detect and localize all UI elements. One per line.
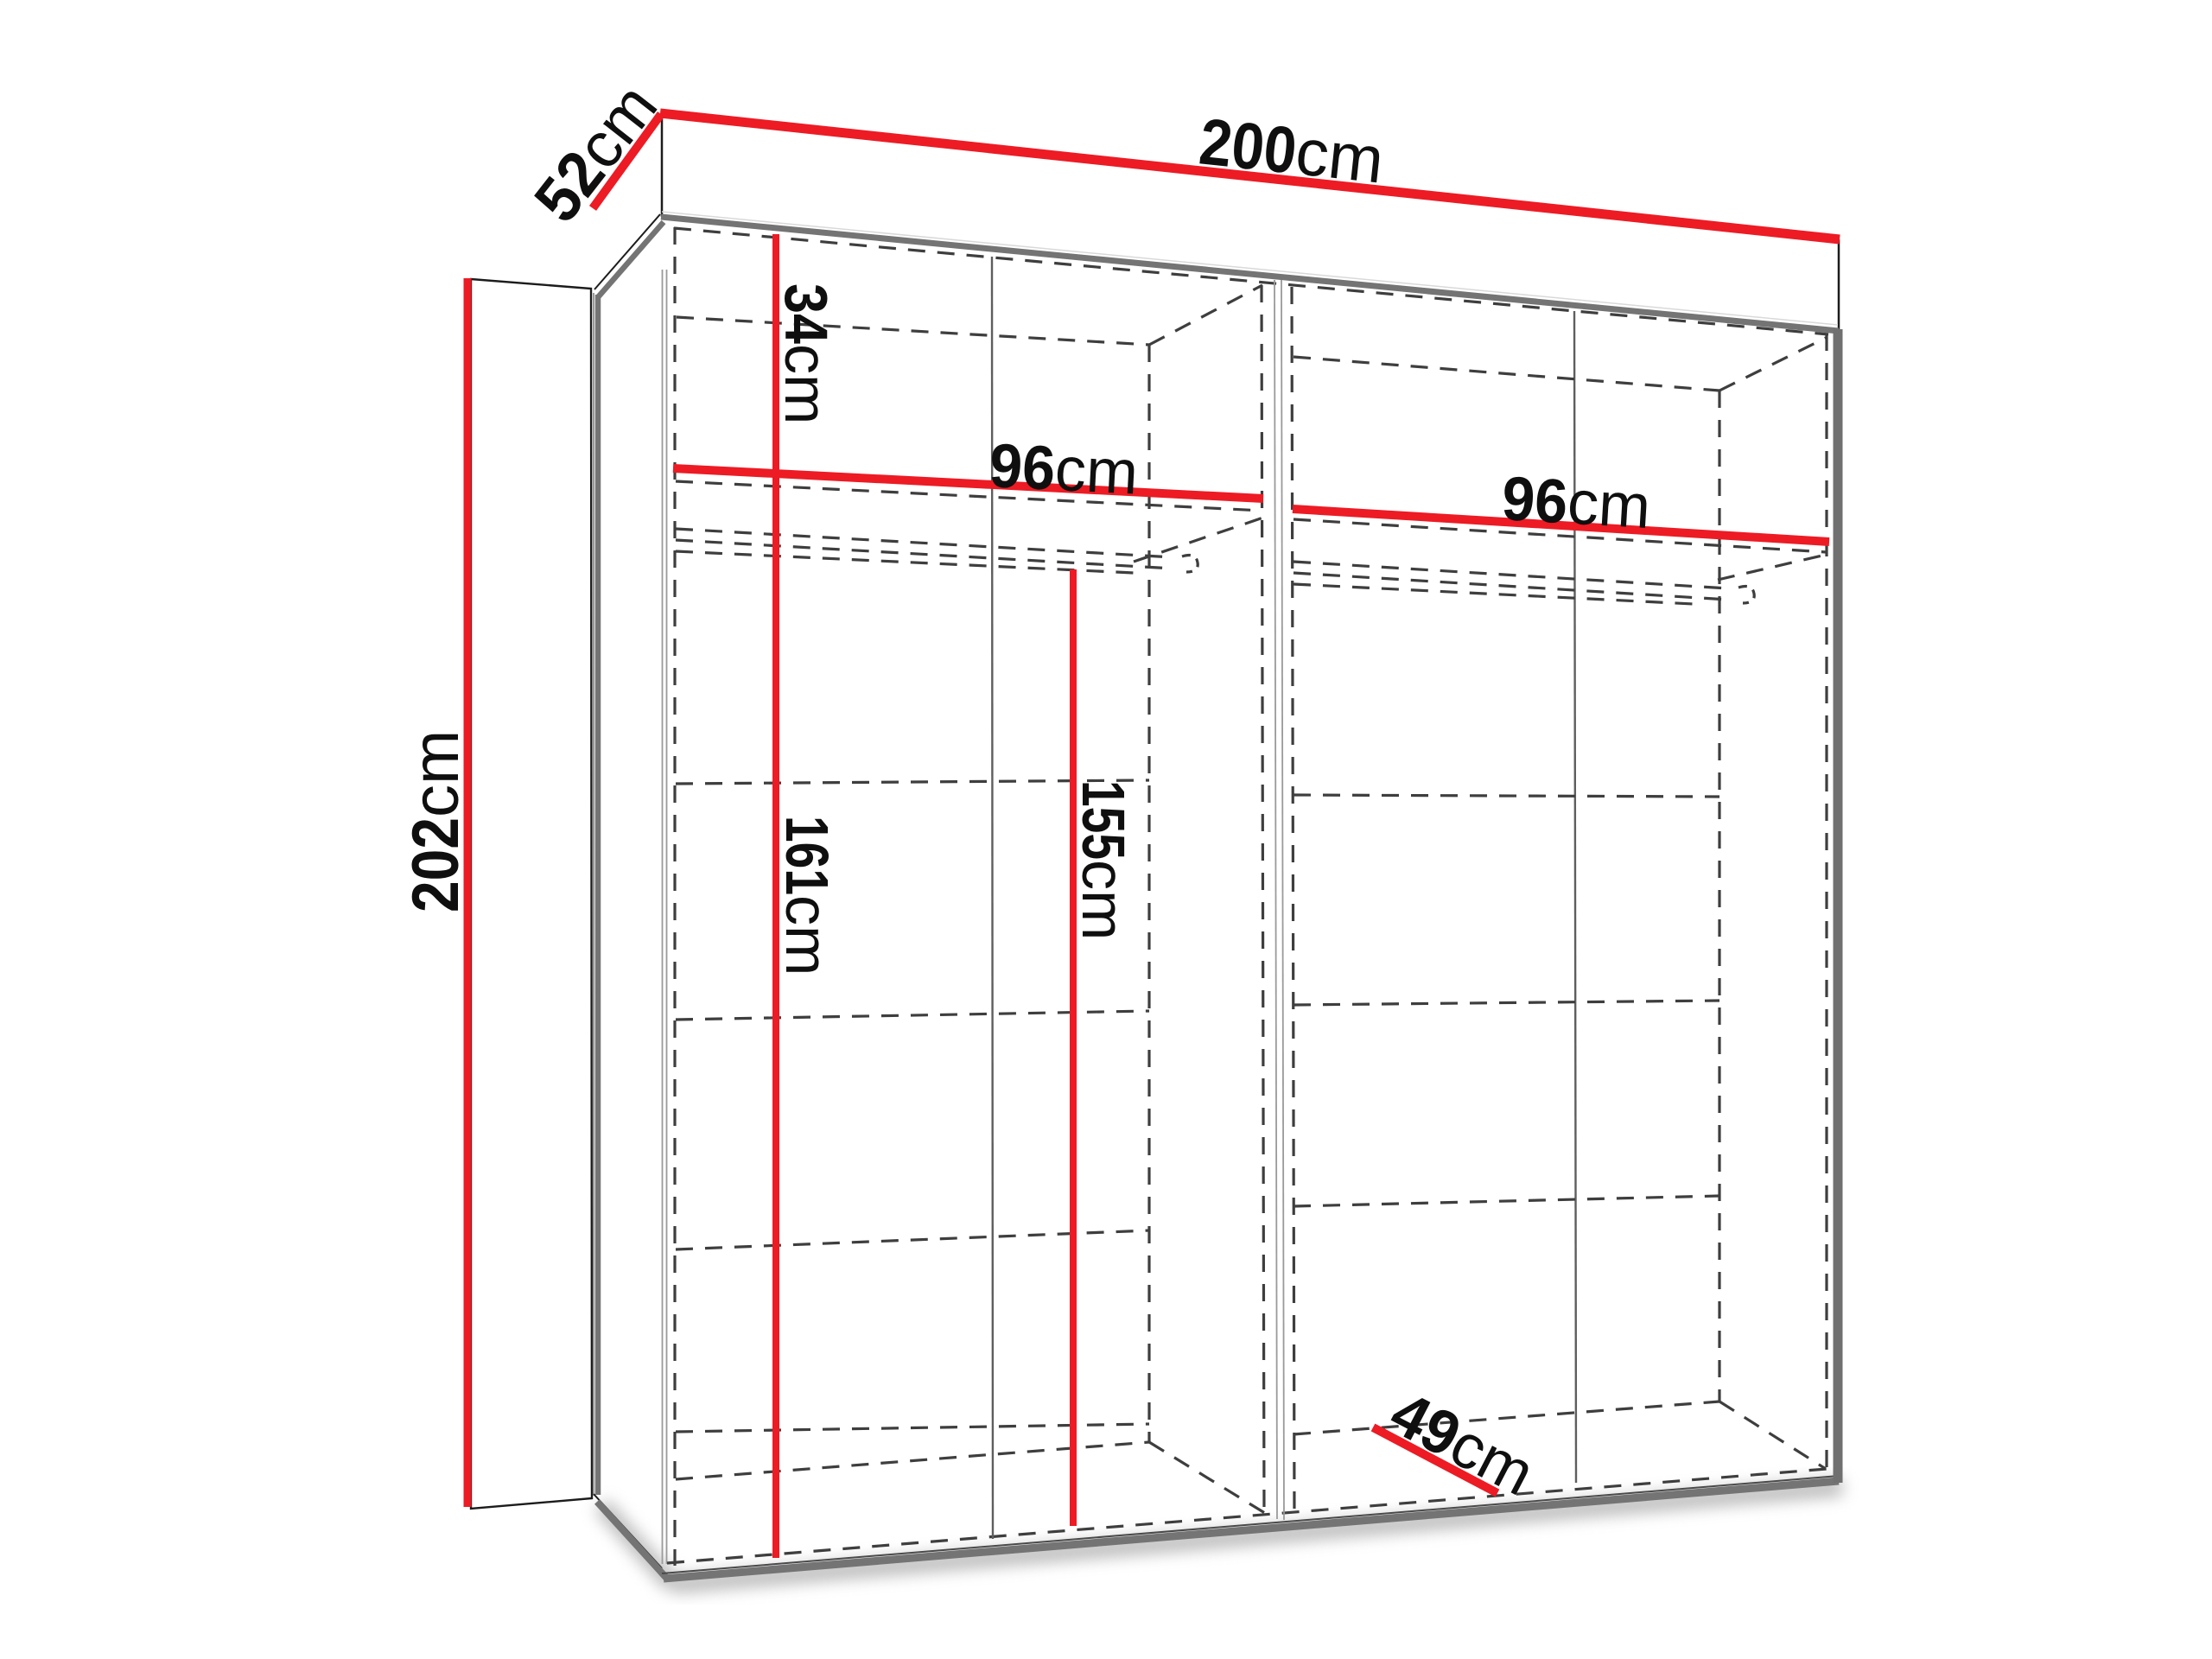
svg-text:161cm: 161cm	[773, 816, 841, 976]
svg-text:155cm: 155cm	[1070, 780, 1137, 940]
svg-text:34cm: 34cm	[772, 283, 840, 424]
svg-text:52cm: 52cm	[520, 71, 671, 235]
svg-text:202cm: 202cm	[399, 730, 473, 912]
svg-text:49cm: 49cm	[1380, 1378, 1545, 1509]
svg-text:96cm: 96cm	[1500, 464, 1652, 542]
svg-text:96cm: 96cm	[988, 431, 1140, 508]
